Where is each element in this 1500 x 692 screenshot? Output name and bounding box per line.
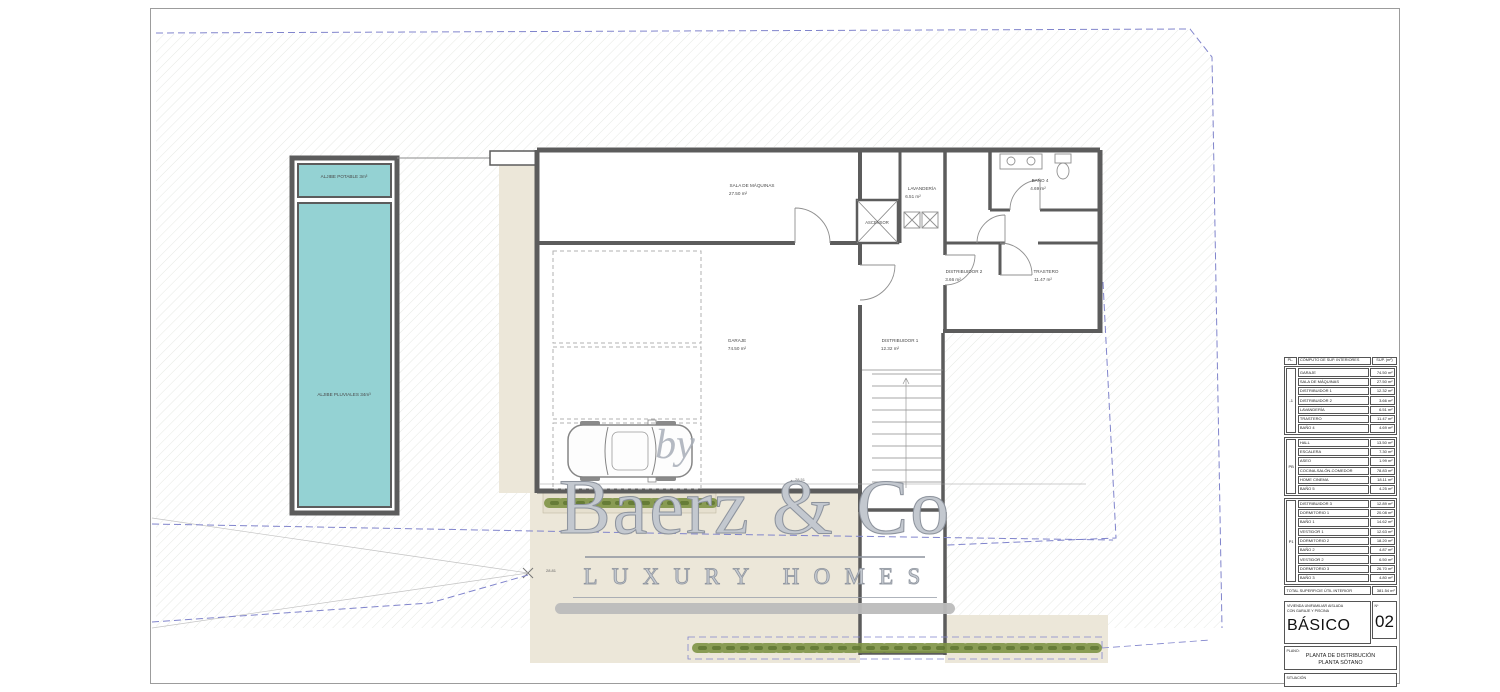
table-row: DORMITORIO 218.20 m² [1298, 537, 1395, 545]
label-garaje: GARAJE [728, 338, 746, 343]
table-row: ESCALERA7.30 m² [1298, 448, 1395, 456]
label-distribuidor-2: DISTRIBUIDOR 2 [946, 269, 983, 274]
situacion-box: SITUACIÓN [1284, 673, 1397, 687]
table-row: GARAJE74.50 m² [1298, 368, 1395, 376]
total-value: 381.54 m² [1372, 586, 1397, 595]
dim-corner: 28.81 [546, 568, 557, 573]
label-bano-4: BAÑO 4 [1032, 177, 1049, 183]
area-distribuidor-1: 12.32 m² [881, 346, 900, 351]
table-row: BAÑO 34.80 m² [1298, 574, 1395, 582]
sheet-number-box: Nº 02 [1372, 601, 1397, 639]
tank-potable [298, 164, 391, 197]
label-sala-maquinas: SALA DE MÁQUINAS [730, 182, 775, 188]
table-row: BAÑO 24.87 m² [1298, 546, 1395, 554]
table-row: BAÑO 54.25 m² [1298, 485, 1395, 493]
title-block-project: VIVIENDA UNIFAMILIAR AISLADA CON GARAJE … [1284, 601, 1371, 644]
title-block: VIVIENDA UNIFAMILIAR AISLADA CON GARAJE … [1284, 601, 1397, 687]
table-row: BAÑO 114.62 m² [1298, 518, 1395, 526]
dim-bottom: 28.51 [795, 477, 806, 482]
table-row: VESTIDOR 112.63 m² [1298, 528, 1395, 536]
table-row: TRASTERO11.47 m² [1298, 415, 1395, 423]
sheet-number-label: Nº [1375, 604, 1395, 608]
area-distribuidor-2: 3.66 m² [945, 277, 961, 282]
header-pl: PL. [1284, 357, 1297, 365]
tank-pluviales [298, 203, 391, 507]
table-row: VESTIDOR 26.50 m² [1298, 555, 1395, 563]
plano-line-1: PLANTA DE DISTRIBUCIÓN [1287, 653, 1395, 661]
table-section-first-floor: P1 DISTRIBUIDOR 312.89 m² DORMITORIO 120… [1284, 498, 1397, 585]
label-trastero: TRASTERO [1033, 269, 1058, 274]
floor-plan-drawing: ALJIBE POTABLE 3m³ ALJIBE PLUVIALES 34m³… [0, 0, 1500, 692]
table-row: COCINA-SALÓN-COMEDOR78.83 m² [1298, 467, 1395, 475]
table-row: BAÑO 44.69 m² [1298, 424, 1395, 432]
area-bano-4: 4.69 m² [1030, 186, 1046, 191]
table-row: HOME CINEMA18.11 m² [1298, 476, 1395, 484]
table-row: DORMITORIO 120.08 m² [1298, 509, 1395, 517]
table-row: SALA DE MÁQUINAS27.50 m² [1298, 378, 1395, 386]
area-lavanderia: 6.51 m² [905, 194, 921, 199]
area-sala-maquinas: 27.50 m² [729, 191, 748, 196]
table-row: DISTRIBUIDOR 23.66 m² [1298, 396, 1395, 404]
header-sup: SUP. (m²) [1372, 357, 1397, 365]
table-section-ground-floor: PB HALL13.50 m² ESCALERA7.30 m² ASEO1.99… [1284, 437, 1397, 496]
table-row: ASEO1.99 m² [1298, 457, 1395, 465]
areas-table: PL. CÓMPUTO DE SUP. INTERIORES SUP. (m²)… [1284, 357, 1397, 595]
label-aljibe-pluviales: ALJIBE PLUVIALES 34m³ [317, 392, 371, 397]
pl-label: P1 [1286, 500, 1296, 583]
project-line-2: CON GARAJE Y PISCINA [1287, 609, 1368, 614]
table-row: DISTRIBUIDOR 112.32 m² [1298, 387, 1395, 395]
table-section-basement: -1 GARAJE74.50 m² SALA DE MÁQUINAS27.50 … [1284, 366, 1397, 434]
plano-line-2: PLANTA SÓTANO [1287, 660, 1395, 668]
pl-label: -1 [1286, 368, 1296, 432]
car [568, 420, 692, 482]
table-row: DISTRIBUIDOR 312.89 m² [1298, 500, 1395, 508]
table-total-row: TOTAL SUPERFICIE ÚTIL INTERIOR 381.54 m² [1284, 586, 1397, 595]
table-row: DORMITORIO 326.70 m² [1298, 565, 1395, 573]
pl-label: PB [1286, 439, 1296, 494]
plano-box: PLANO: PLANTA DE DISTRIBUCIÓN PLANTA SÓT… [1284, 646, 1397, 670]
label-ascensor: ASCENSOR [865, 220, 889, 225]
label-aljibe-potable: ALJIBE POTABLE 3m³ [321, 174, 368, 179]
phase-title: BÁSICO [1287, 617, 1368, 635]
total-label: TOTAL SUPERFICIE ÚTIL INTERIOR [1284, 586, 1371, 595]
situacion-label: SITUACIÓN [1287, 676, 1307, 680]
header-name: CÓMPUTO DE SUP. INTERIORES [1298, 357, 1371, 365]
area-garaje: 74.50 m² [728, 346, 747, 351]
area-trastero: 11.47 m² [1034, 277, 1052, 282]
sheet-number: 02 [1375, 612, 1395, 632]
areas-table-header: PL. CÓMPUTO DE SUP. INTERIORES SUP. (m²) [1284, 357, 1397, 365]
floor-plan-sheet: ALJIBE POTABLE 3m³ ALJIBE PLUVIALES 34m³… [0, 0, 1500, 692]
table-row: HALL13.50 m² [1298, 439, 1395, 447]
table-row: LAVANDERÍA6.51 m² [1298, 406, 1395, 414]
label-distribuidor-1: DISTRIBUIDOR 1 [882, 338, 919, 343]
label-lavanderia: LAVANDERÍA [908, 185, 937, 191]
